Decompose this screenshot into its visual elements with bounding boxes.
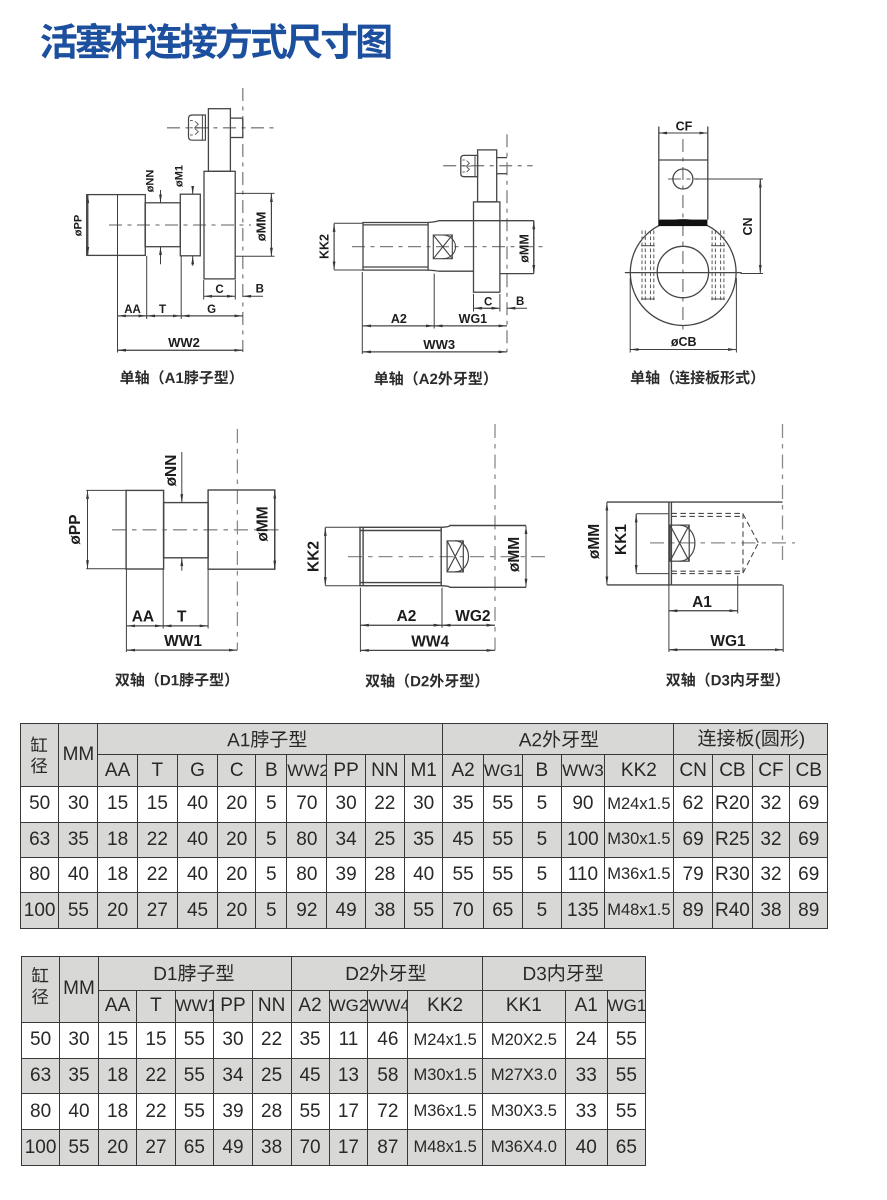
svg-text:KK2: KK2 [306, 541, 323, 572]
svg-text:C: C [484, 296, 492, 308]
svg-text:øNN: øNN [145, 170, 157, 193]
svg-text:øMM: øMM [255, 506, 272, 541]
svg-text:B: B [516, 296, 524, 308]
svg-text:B: B [256, 284, 264, 296]
svg-text:øMM: øMM [506, 537, 523, 572]
svg-text:KK1: KK1 [613, 524, 630, 555]
svg-text:WW1: WW1 [164, 633, 202, 650]
svg-text:øPP: øPP [67, 514, 84, 544]
svg-text:øPP: øPP [73, 215, 85, 236]
svg-text:KK2: KK2 [318, 234, 332, 259]
svg-text:AA: AA [132, 609, 154, 626]
svg-text:WG2: WG2 [455, 608, 490, 625]
svg-text:A2: A2 [397, 608, 417, 625]
svg-text:CF: CF [676, 119, 693, 133]
svg-text:T: T [177, 609, 187, 626]
svg-text:øNN: øNN [163, 455, 180, 487]
svg-text:AA: AA [124, 304, 141, 316]
svg-text:A2: A2 [391, 312, 407, 326]
svg-text:WG1: WG1 [459, 312, 488, 326]
svg-text:WW3: WW3 [423, 337, 455, 352]
svg-text:øM1: øM1 [174, 165, 186, 187]
svg-text:G: G [207, 304, 216, 316]
svg-text:øCB: øCB [671, 335, 697, 349]
svg-text:A1: A1 [692, 594, 712, 611]
svg-text:WW4: WW4 [411, 633, 449, 650]
svg-text:C: C [215, 284, 223, 296]
svg-text:T: T [159, 304, 166, 316]
svg-text:øMM: øMM [254, 212, 269, 242]
svg-text:WG1: WG1 [710, 633, 746, 650]
svg-text:øMM: øMM [586, 524, 603, 559]
svg-text:øMM: øMM [518, 234, 532, 262]
svg-text:CN: CN [741, 217, 755, 235]
svg-text:WW2: WW2 [168, 335, 200, 350]
